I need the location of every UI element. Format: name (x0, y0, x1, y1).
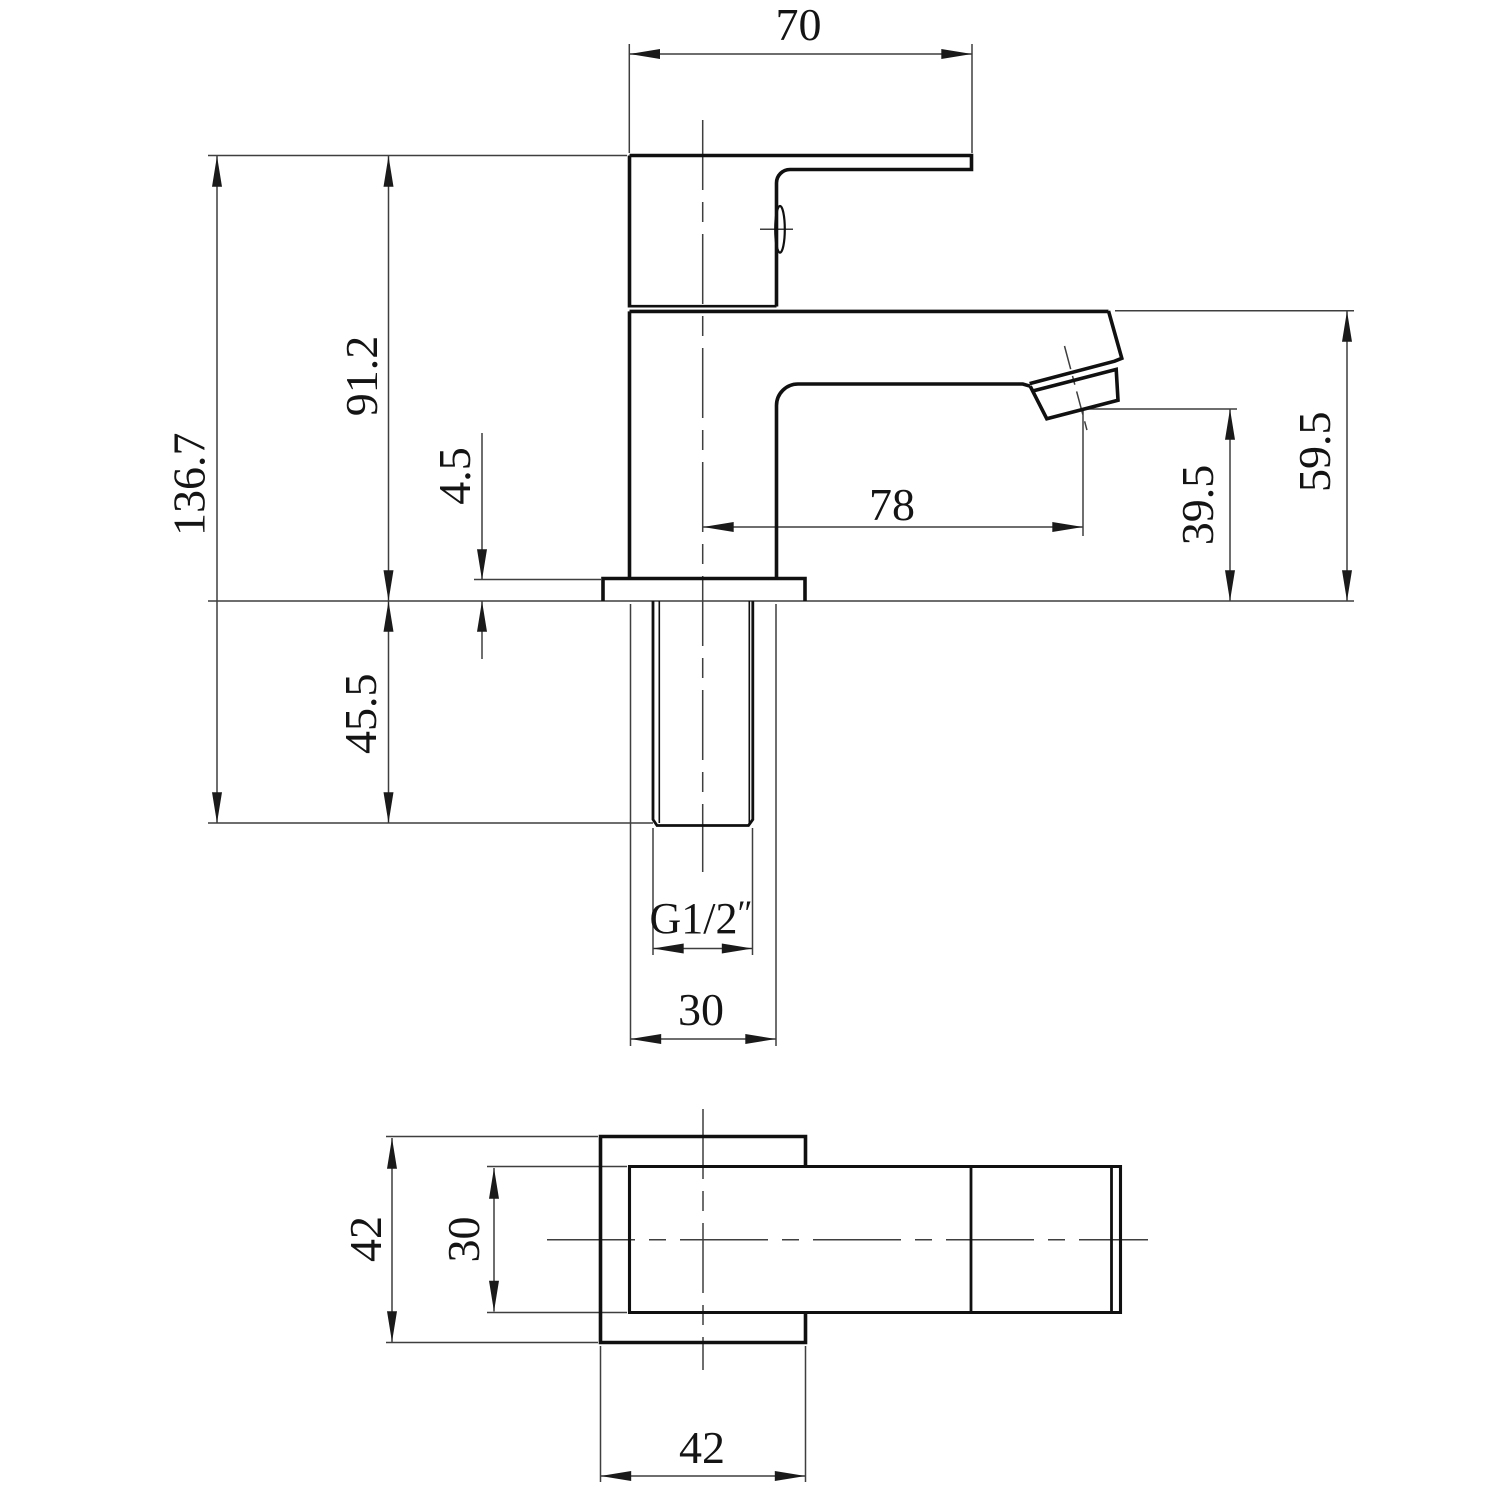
svg-text:30: 30 (678, 984, 724, 1035)
svg-text:30: 30 (438, 1217, 489, 1263)
svg-text:70: 70 (776, 0, 822, 50)
svg-text:45.5: 45.5 (335, 673, 386, 754)
svg-text:91.2: 91.2 (336, 336, 387, 417)
svg-text:39.5: 39.5 (1172, 465, 1223, 546)
svg-text:136.7: 136.7 (164, 432, 215, 536)
svg-text:G1/2″: G1/2″ (650, 893, 753, 943)
svg-text:42: 42 (679, 1422, 725, 1473)
svg-text:78: 78 (869, 479, 915, 530)
svg-text:4.5: 4.5 (429, 447, 480, 505)
svg-text:42: 42 (340, 1216, 391, 1262)
svg-text:59.5: 59.5 (1289, 411, 1340, 492)
